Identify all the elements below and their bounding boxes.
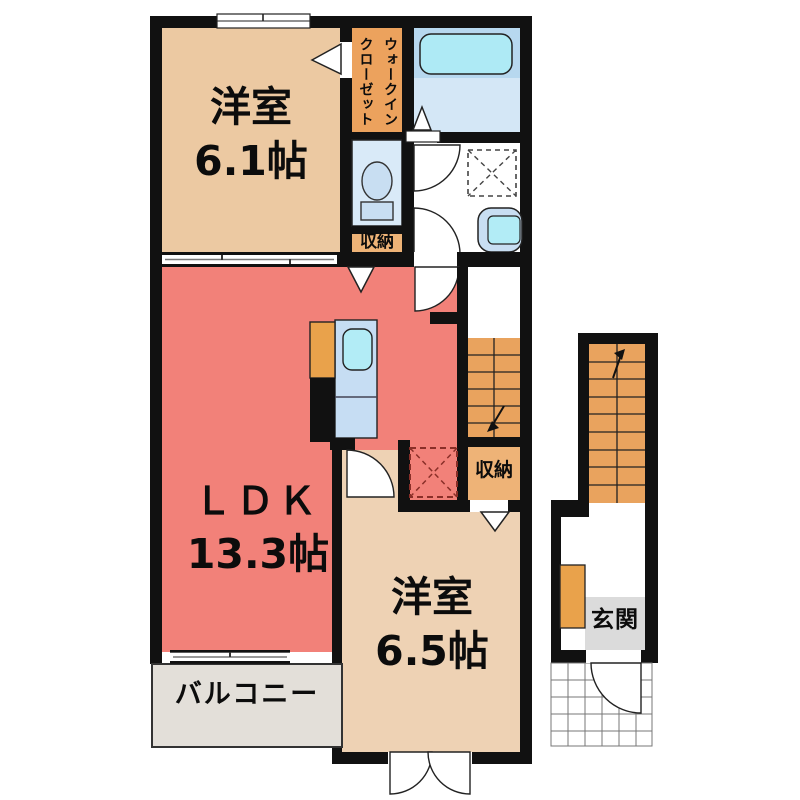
ldk-size: 13.3帖 <box>160 533 356 576</box>
wall <box>330 438 355 450</box>
bath-door-leaf <box>406 131 440 142</box>
walk-in-closet-label: ウォークイン クローゼット <box>352 34 402 130</box>
door-gap <box>470 500 508 512</box>
washing-machine-space <box>468 150 516 196</box>
shoe-cabinet <box>560 565 585 628</box>
bathroom-floor-lower <box>414 78 520 132</box>
wic-line1: ウォークイン <box>378 34 403 130</box>
balcony-label: バルコニー <box>152 681 342 709</box>
room-6-5-size: 6.5帖 <box>347 630 517 673</box>
toilet-icon <box>361 162 393 220</box>
wall <box>457 437 520 447</box>
stairs-main <box>468 338 520 437</box>
wic-line2: クローゼット <box>353 34 378 130</box>
wall <box>430 312 457 324</box>
storage-right-label: 収納 <box>466 461 522 481</box>
kitchen-sink-icon <box>343 329 372 370</box>
door-gap <box>586 650 641 663</box>
kitchen-fridge-space <box>310 322 335 378</box>
room-6-5-name: 洋室 <box>347 576 517 619</box>
room-6-1-size: 6.1帖 <box>162 140 340 183</box>
stairs-entrance <box>589 344 645 503</box>
door-gap <box>340 42 352 78</box>
door-arc-room65-right <box>428 752 470 794</box>
door-arc-room65-left <box>390 752 432 794</box>
washbasin-icon <box>478 208 522 252</box>
room-6-1-name: 洋室 <box>162 86 340 129</box>
kitchen-unit <box>310 320 377 442</box>
storage-top-label: 収納 <box>350 234 404 252</box>
sliding-door-room61 <box>162 252 337 267</box>
landing-floor <box>468 267 520 338</box>
wall <box>352 132 402 140</box>
bathtub-icon <box>420 34 512 74</box>
floor-plan: 洋室 6.1帖 ウォークイン クローゼット 収納 ＬＤＫ 13.3帖 洋室 6.… <box>0 0 800 800</box>
wall <box>437 132 520 143</box>
genkan-label: 玄関 <box>584 608 646 632</box>
wall <box>398 440 410 502</box>
sliding-door-balcony <box>170 650 290 664</box>
window-room61 <box>217 14 310 28</box>
door-gap <box>414 252 457 267</box>
kitchen-wall <box>310 378 335 442</box>
ldk-name: ＬＤＫ <box>164 482 350 522</box>
